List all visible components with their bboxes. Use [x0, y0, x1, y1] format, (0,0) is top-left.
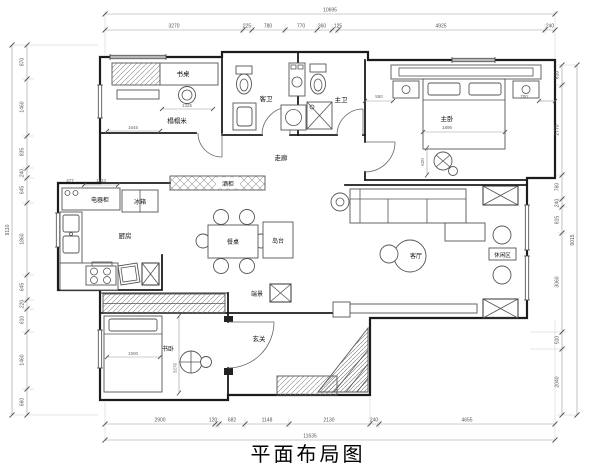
dim-bottom-1: 120: [209, 418, 218, 424]
dim-right-total: 9015: [570, 234, 576, 245]
dim-top-5: 125: [334, 24, 343, 30]
fridge-label: 冰箱: [134, 198, 146, 206]
dim-bottom-3: 1148: [262, 418, 273, 424]
dim-top-6: 4925: [435, 24, 446, 30]
desk-label: 书桌: [177, 69, 191, 78]
dining: 餐桌 岛台 端景: [196, 210, 293, 299]
dim-top-4: 360: [318, 24, 327, 30]
appliance-cabinet-label: 电器柜: [91, 196, 109, 204]
kitchen-label: 厨房: [119, 231, 132, 240]
dim-left-3: 240: [20, 169, 26, 178]
dim-bottom-5: 240: [370, 418, 379, 424]
master-bedroom: 主卧 1896 550 700 620: [363, 65, 557, 178]
dim-right-6: 510: [555, 336, 561, 345]
dim-chain-top: 3270 225 780 770 360 125 4925 240 10695: [103, 8, 558, 59]
dim-right-2: 760: [555, 183, 561, 192]
dim-bed-right: 700: [520, 94, 528, 99]
dim-top-7: 240: [546, 24, 555, 30]
dim-bed-left: 550: [375, 94, 383, 99]
dim-top-0: 3270: [168, 24, 179, 30]
dim-left-0: 870: [20, 58, 26, 67]
dim-left-total: 9110: [5, 224, 11, 235]
dim-bottom-2: 682: [228, 418, 237, 424]
dim-top-total: 10695: [323, 8, 337, 14]
dim-right-4: 815: [555, 216, 561, 225]
wine-cabinet: 酒柜: [170, 176, 265, 190]
dim-left-5: 1860: [20, 233, 26, 244]
floor-plan-canvas: 酒柜 客卫 主卫: [0, 0, 600, 465]
dim-left-7: 220: [20, 300, 26, 309]
dim-chain-left: 870 1460 835 240 645 1860 645 220 610 14…: [5, 43, 98, 418]
study-bedroom: 1500 书卧 3276 玄关: [104, 314, 274, 396]
dim-left-8: 610: [20, 316, 26, 325]
dim-bottom-6: 4655: [461, 418, 472, 424]
dim-top-3: 770: [297, 24, 306, 30]
tatami-label: 榻榻米: [167, 116, 187, 125]
dim-study-bed-width: 1500: [128, 351, 139, 356]
entry-stairs: [318, 328, 368, 392]
master-bath: 主卫: [281, 63, 363, 135]
dim-appliance-top: 1133: [96, 178, 106, 183]
wardrobe-tatami: [112, 63, 160, 85]
master-bed-label: 主卧: [441, 114, 455, 123]
wine-cabinet-label: 酒柜: [222, 180, 234, 188]
dim-left-2: 835: [20, 148, 26, 157]
dim-top-2: 780: [264, 24, 273, 30]
living-label: 客厅: [410, 252, 422, 260]
dim-left-6: 645: [20, 283, 26, 292]
kitchen: 电器柜 1133 477 冰箱 厨房: [60, 178, 158, 290]
floor-plan-page: 酒柜 客卫 主卫: [0, 0, 600, 465]
dim-tatami-width: 1645: [128, 125, 139, 130]
dim-desk-width: 1325: [182, 103, 193, 108]
plan-title: 平面布局图: [251, 442, 366, 465]
dim-right-3: 240: [555, 199, 561, 208]
study-bed-label: 书卧: [162, 345, 174, 353]
island-label: 岛台: [272, 237, 284, 245]
shelf: [117, 90, 159, 99]
dim-bottom-total: 11635: [303, 434, 317, 440]
dim-left-9: 1460: [20, 354, 26, 365]
dim-bedroom-chair: 620: [420, 158, 425, 166]
master-bath-label: 主卫: [335, 95, 349, 104]
dim-right-0: 610: [555, 71, 561, 80]
dim-bottom-4: 2130: [323, 418, 334, 424]
dim-bottom-0: 2900: [154, 418, 165, 424]
dim-right-5: 3060: [555, 276, 561, 287]
dim-top-1: 225: [243, 24, 252, 30]
dim-appliance-left: 477: [66, 178, 74, 183]
dining-table-label: 餐桌: [227, 238, 239, 246]
dim-master-bed-width: 1896: [442, 125, 453, 130]
dim-study-bed-length: 3276: [173, 362, 178, 373]
dim-left-10: 660: [20, 398, 26, 407]
guest-bath-label: 客卫: [260, 94, 274, 103]
dim-right-7: 2040: [555, 376, 561, 387]
dim-left-1: 1460: [20, 101, 26, 112]
dim-left-4: 645: [20, 186, 26, 195]
endview-label: 端景: [251, 290, 263, 298]
foyer-label: 玄关: [253, 334, 267, 343]
leisure-label: 休闲区: [494, 251, 511, 259]
corridor-label: 走廊: [275, 153, 289, 162]
dim-right-1: 2770: [555, 124, 561, 135]
living-room: 客厅 休闲区: [331, 189, 516, 317]
